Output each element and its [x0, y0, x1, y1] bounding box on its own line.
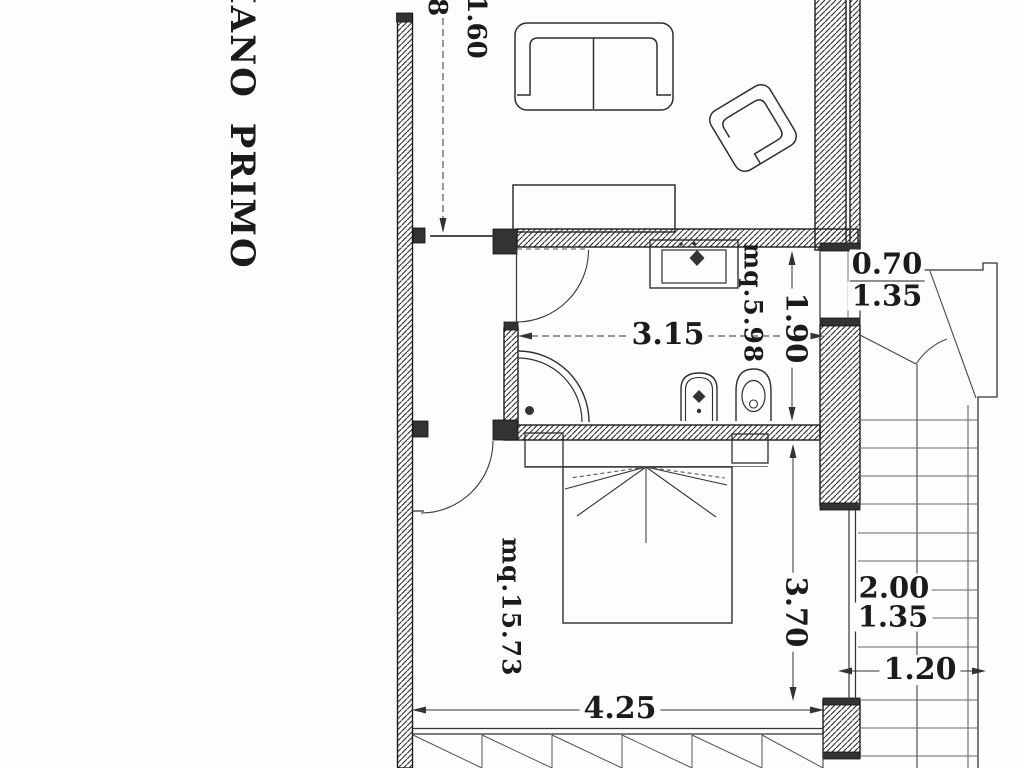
- bidet: [681, 373, 717, 421]
- dim-label-living-partial: 8: [424, 0, 450, 16]
- floor-title: PIANO PRIMO: [225, 0, 259, 270]
- dim-label-bath-width: 3.15: [627, 320, 708, 350]
- floor-plan-page: PIANO PRIMO 8 1.60 3.15 mq.5.98 1.90 0.7…: [0, 0, 1024, 768]
- dim-label-bath-depth: 1.90: [782, 289, 811, 368]
- bed: [525, 433, 768, 623]
- area-label-bathroom: mq.5.98: [741, 243, 766, 364]
- dim-label-bedroom-depth: 3.70: [782, 573, 811, 652]
- terrace-balcony: [413, 729, 823, 768]
- dim-label-bedroom-window-height: 1.35: [854, 603, 933, 632]
- toilet: [736, 369, 771, 421]
- staircase: [858, 263, 997, 768]
- dim-label-stair-width: 1.20: [879, 655, 960, 685]
- armchair: [706, 81, 801, 176]
- shower: [518, 351, 589, 422]
- sideboard: [513, 185, 675, 232]
- dim-label-bath-window-height: 1.35: [848, 282, 927, 311]
- area-label-bedroom: mq.15.73: [499, 538, 524, 677]
- dim-label-living-width: 1.60: [463, 0, 489, 59]
- walls: [398, 0, 861, 768]
- bedspread-lines: [565, 467, 727, 543]
- dim-label-bedroom-width: 4.25: [579, 694, 660, 724]
- sofa: [515, 23, 673, 110]
